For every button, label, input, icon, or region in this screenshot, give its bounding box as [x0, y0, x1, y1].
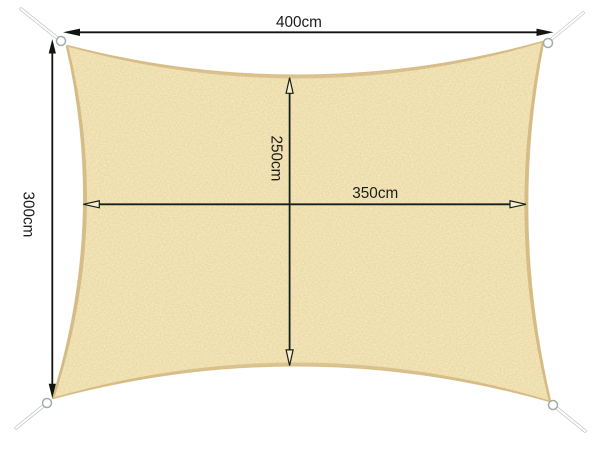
- svg-text:400cm: 400cm: [276, 14, 322, 31]
- svg-text:300cm: 300cm: [19, 192, 36, 238]
- svg-text:350cm: 350cm: [352, 185, 398, 202]
- svg-text:250cm: 250cm: [268, 136, 285, 182]
